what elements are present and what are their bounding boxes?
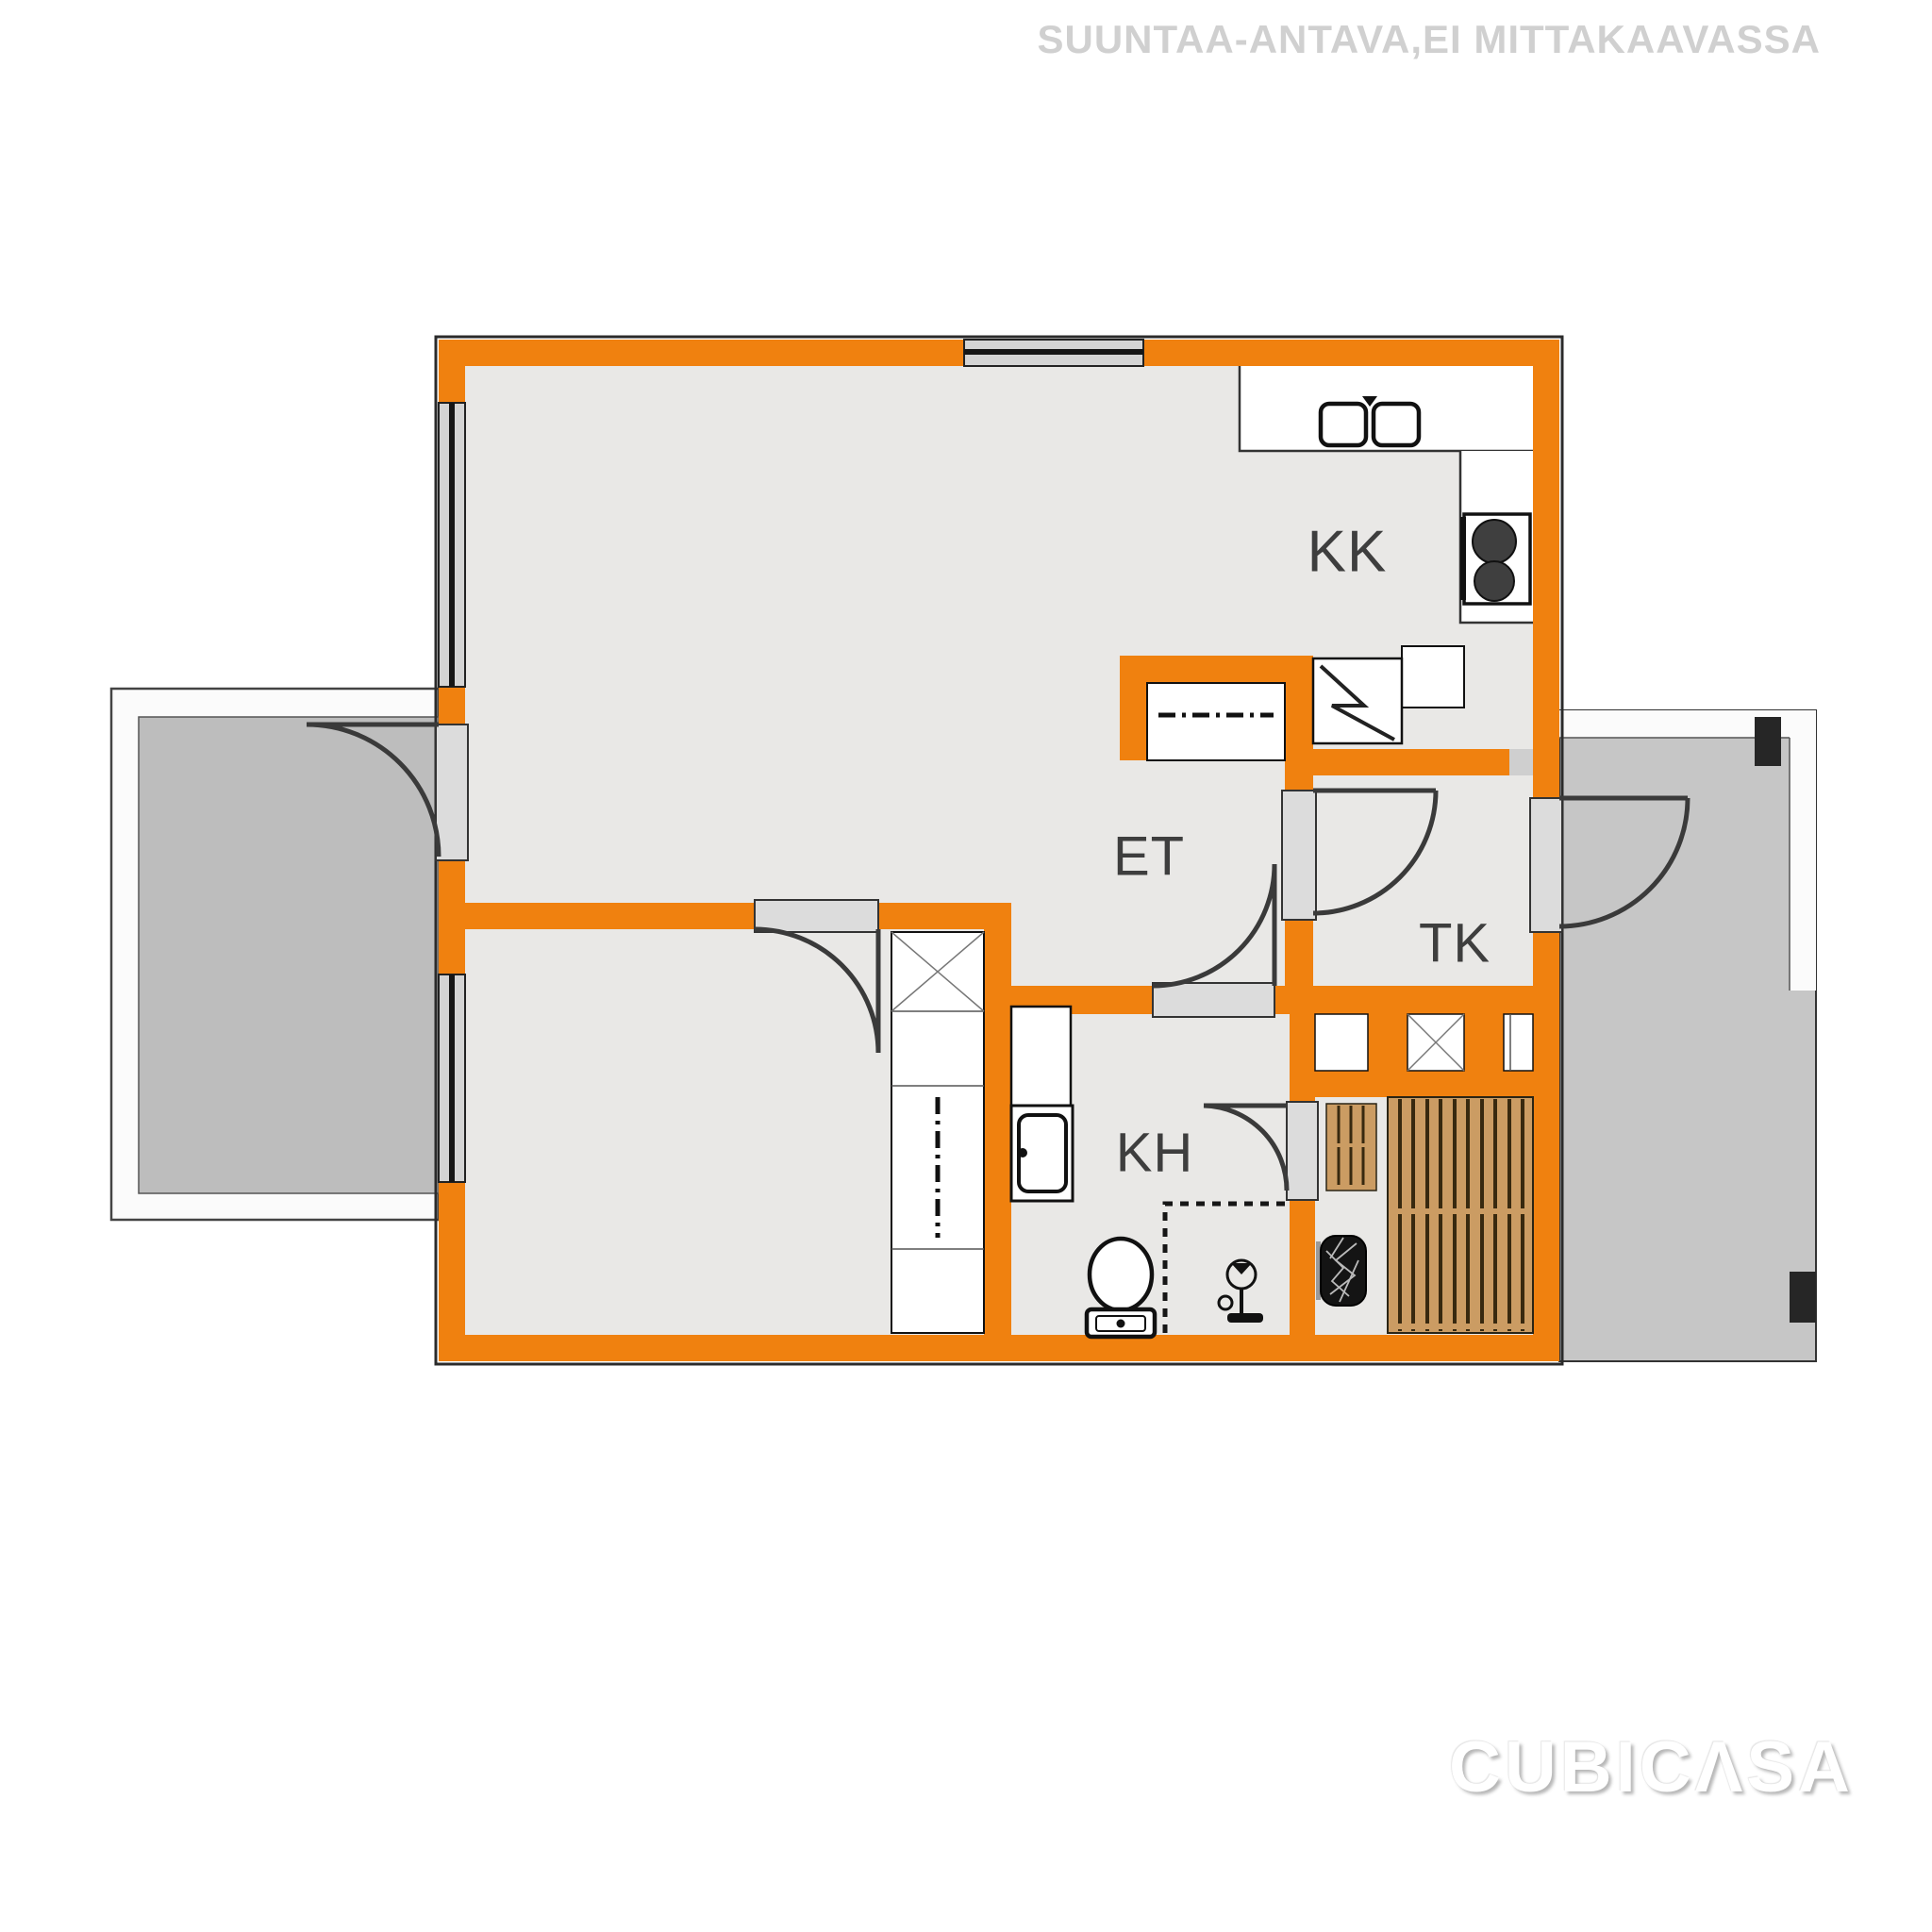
- window-top: [964, 340, 1143, 366]
- hall-vestibule-door-threshold: [1282, 791, 1316, 920]
- hall-closet: [1147, 683, 1285, 760]
- room-label-et: ET: [1113, 825, 1185, 889]
- sauna-door-threshold: [1287, 1102, 1318, 1200]
- kitchen-appliance: [1402, 646, 1464, 708]
- floor-plan-page: SUUNTAA-ANTAVA,EI MITTAKAAVASSA: [0, 0, 1932, 1932]
- room-label-kh: KH: [1116, 1122, 1194, 1185]
- floor-plan-svg: [0, 0, 1932, 1932]
- room-label-kk: KK: [1307, 519, 1388, 586]
- balcony: [111, 689, 439, 1220]
- bedroom-closets: [891, 932, 984, 1333]
- electrical-cabinet-icon: [1313, 658, 1402, 743]
- balcony-door-threshold: [436, 724, 468, 860]
- toilet-icon: [1087, 1239, 1155, 1337]
- room-label-tk: TK: [1419, 912, 1491, 975]
- washing-machine: [1011, 1007, 1071, 1106]
- bedroom-door-threshold: [755, 900, 878, 932]
- sauna-stove-icon: [1316, 1236, 1366, 1306]
- bathroom-sink-icon: [1011, 1106, 1073, 1201]
- terrace-door-threshold: [1530, 798, 1562, 932]
- terrace-mat: [1790, 1272, 1816, 1323]
- door-mat: [1755, 717, 1781, 766]
- cubicasa-logo: CUBICΛSA: [1449, 1726, 1854, 1808]
- window-left-living: [439, 403, 465, 687]
- window-left-bedroom: [439, 974, 465, 1182]
- stove-icon: [1460, 514, 1530, 604]
- hall-bathroom-door-threshold: [1153, 983, 1274, 1017]
